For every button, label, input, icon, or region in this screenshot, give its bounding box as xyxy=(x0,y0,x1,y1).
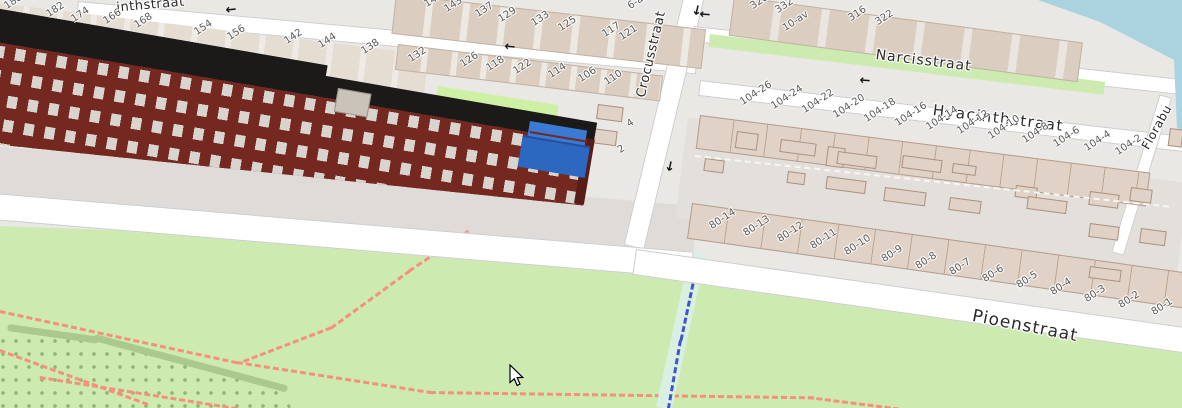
housenumber-label: 4 xyxy=(625,117,636,130)
oneway-arrow-icon: ← xyxy=(859,74,871,88)
oneway-arrow-icon: ← xyxy=(225,3,237,17)
oneway-arrow-icon: ← xyxy=(504,40,516,54)
shed-footprint xyxy=(1168,128,1182,148)
housenumber-label: 6-aa xyxy=(626,0,651,12)
housenumber-label: 2 xyxy=(616,143,627,156)
shed-footprint xyxy=(703,158,725,173)
oneway-arrow-icon: ← xyxy=(663,159,678,173)
shed-footprint xyxy=(596,104,624,122)
shed-footprint xyxy=(735,131,759,151)
shed-footprint xyxy=(786,171,805,185)
map-canvas[interactable]: inthstraatCrocusstraatNarcisstraatHyacin… xyxy=(0,0,1182,408)
mouse-cursor-icon xyxy=(509,364,525,388)
shed-footprint xyxy=(1139,228,1167,246)
